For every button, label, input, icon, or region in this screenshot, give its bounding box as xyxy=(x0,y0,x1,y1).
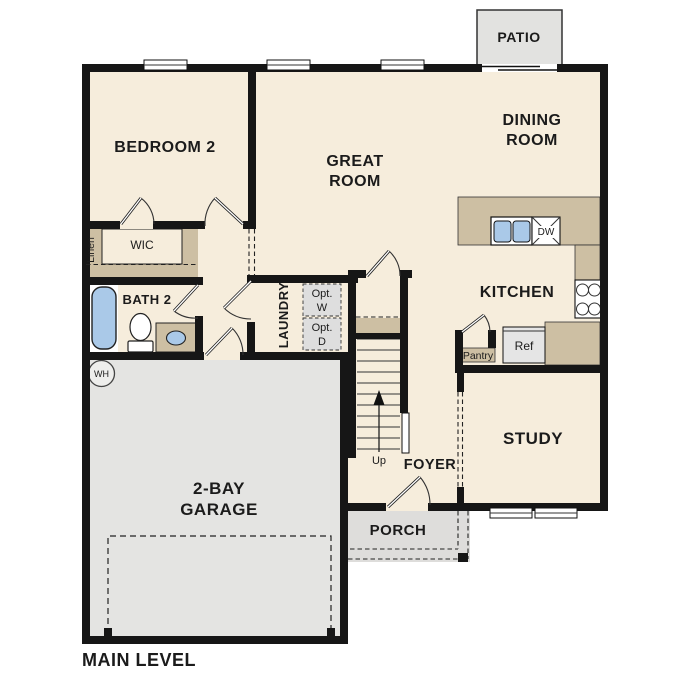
stairs-up-label: Up xyxy=(372,455,386,467)
wall-bedroom-divider xyxy=(248,64,256,229)
plan-title: MAIN LEVEL xyxy=(82,650,196,670)
wall-garage-bottom xyxy=(82,636,348,644)
study-label: STUDY xyxy=(503,429,563,448)
foyer-study-floor-area xyxy=(344,359,604,507)
opening-laundry xyxy=(247,283,255,322)
sink-basin-left xyxy=(494,221,511,242)
wall-closet-stub-left xyxy=(356,270,366,278)
laundry-label: LAUNDRY xyxy=(276,282,291,349)
garage-door-post-right xyxy=(327,628,335,636)
dining-room-label-1: DINING xyxy=(503,112,562,129)
wall-stair-base xyxy=(356,333,400,339)
bathtub-fixture xyxy=(92,287,116,349)
kitchen-counter-right-lower xyxy=(545,322,600,365)
opt-washer-label-1: Opt. xyxy=(312,288,333,300)
wall-garage-right xyxy=(340,352,348,644)
toilet-fixture xyxy=(130,314,151,341)
wic-label: WIC xyxy=(130,238,154,252)
floor-plan-drawing: BEDROOM 2 GREAT ROOM DINING ROOM KITCHEN… xyxy=(0,0,687,687)
opt-dryer-label-1: Opt. xyxy=(312,322,333,334)
wall-pantry-right xyxy=(488,330,496,348)
foyer-label: FOYER xyxy=(404,457,456,473)
toilet-tank xyxy=(128,341,153,352)
stair-railing xyxy=(402,413,409,453)
sink-basin-right xyxy=(513,221,530,242)
porch-post xyxy=(458,553,468,562)
stair-landing xyxy=(356,318,400,333)
wall-kitchen-study xyxy=(455,365,608,373)
kitchen-label: KITCHEN xyxy=(480,284,555,301)
garage-label-1: 2-BAY xyxy=(193,479,245,498)
bath-sink-fixture xyxy=(167,331,186,345)
kitchen-counter-right-upper xyxy=(575,245,600,280)
water-heater-label: WH xyxy=(94,369,109,379)
wall-study-stub-bottom xyxy=(457,487,464,511)
bath2-label: BATH 2 xyxy=(123,292,172,307)
wall-exterior-right xyxy=(600,64,608,511)
dining-room-label-2: ROOM xyxy=(506,132,558,149)
opt-dryer-label-2: D xyxy=(318,336,326,348)
linen-label: Linen xyxy=(85,237,97,263)
garage-label-2: GARAGE xyxy=(180,500,258,519)
pantry-label: Pantry xyxy=(463,350,494,362)
opening-bath2 xyxy=(195,285,203,316)
wall-bath-right-stub xyxy=(195,277,203,285)
porch-label: PORCH xyxy=(370,522,427,539)
wall-laundry-top xyxy=(247,275,358,283)
opening-patio-slider xyxy=(482,64,557,72)
wall-study-stub-top xyxy=(457,365,464,392)
floor-plan: BEDROOM 2 GREAT ROOM DINING ROOM KITCHEN… xyxy=(0,0,687,687)
great-room-label-1: GREAT xyxy=(326,153,383,170)
opening-bedroom2 xyxy=(205,221,243,229)
bedroom2-label: BEDROOM 2 xyxy=(114,139,215,156)
opening-wic xyxy=(120,221,153,229)
garage-door-post-left xyxy=(104,628,112,636)
wall-wic-bath xyxy=(82,277,203,285)
wall-pantry-left xyxy=(455,330,463,368)
great-room-label-2: ROOM xyxy=(329,173,381,190)
wall-stair-right xyxy=(400,270,408,413)
fridge-label: Ref xyxy=(515,339,534,353)
patio-label: PATIO xyxy=(497,29,540,45)
dishwasher-label: DW xyxy=(538,227,555,238)
opt-washer-label-2: W xyxy=(317,302,328,314)
wall-stair-left xyxy=(348,270,356,458)
